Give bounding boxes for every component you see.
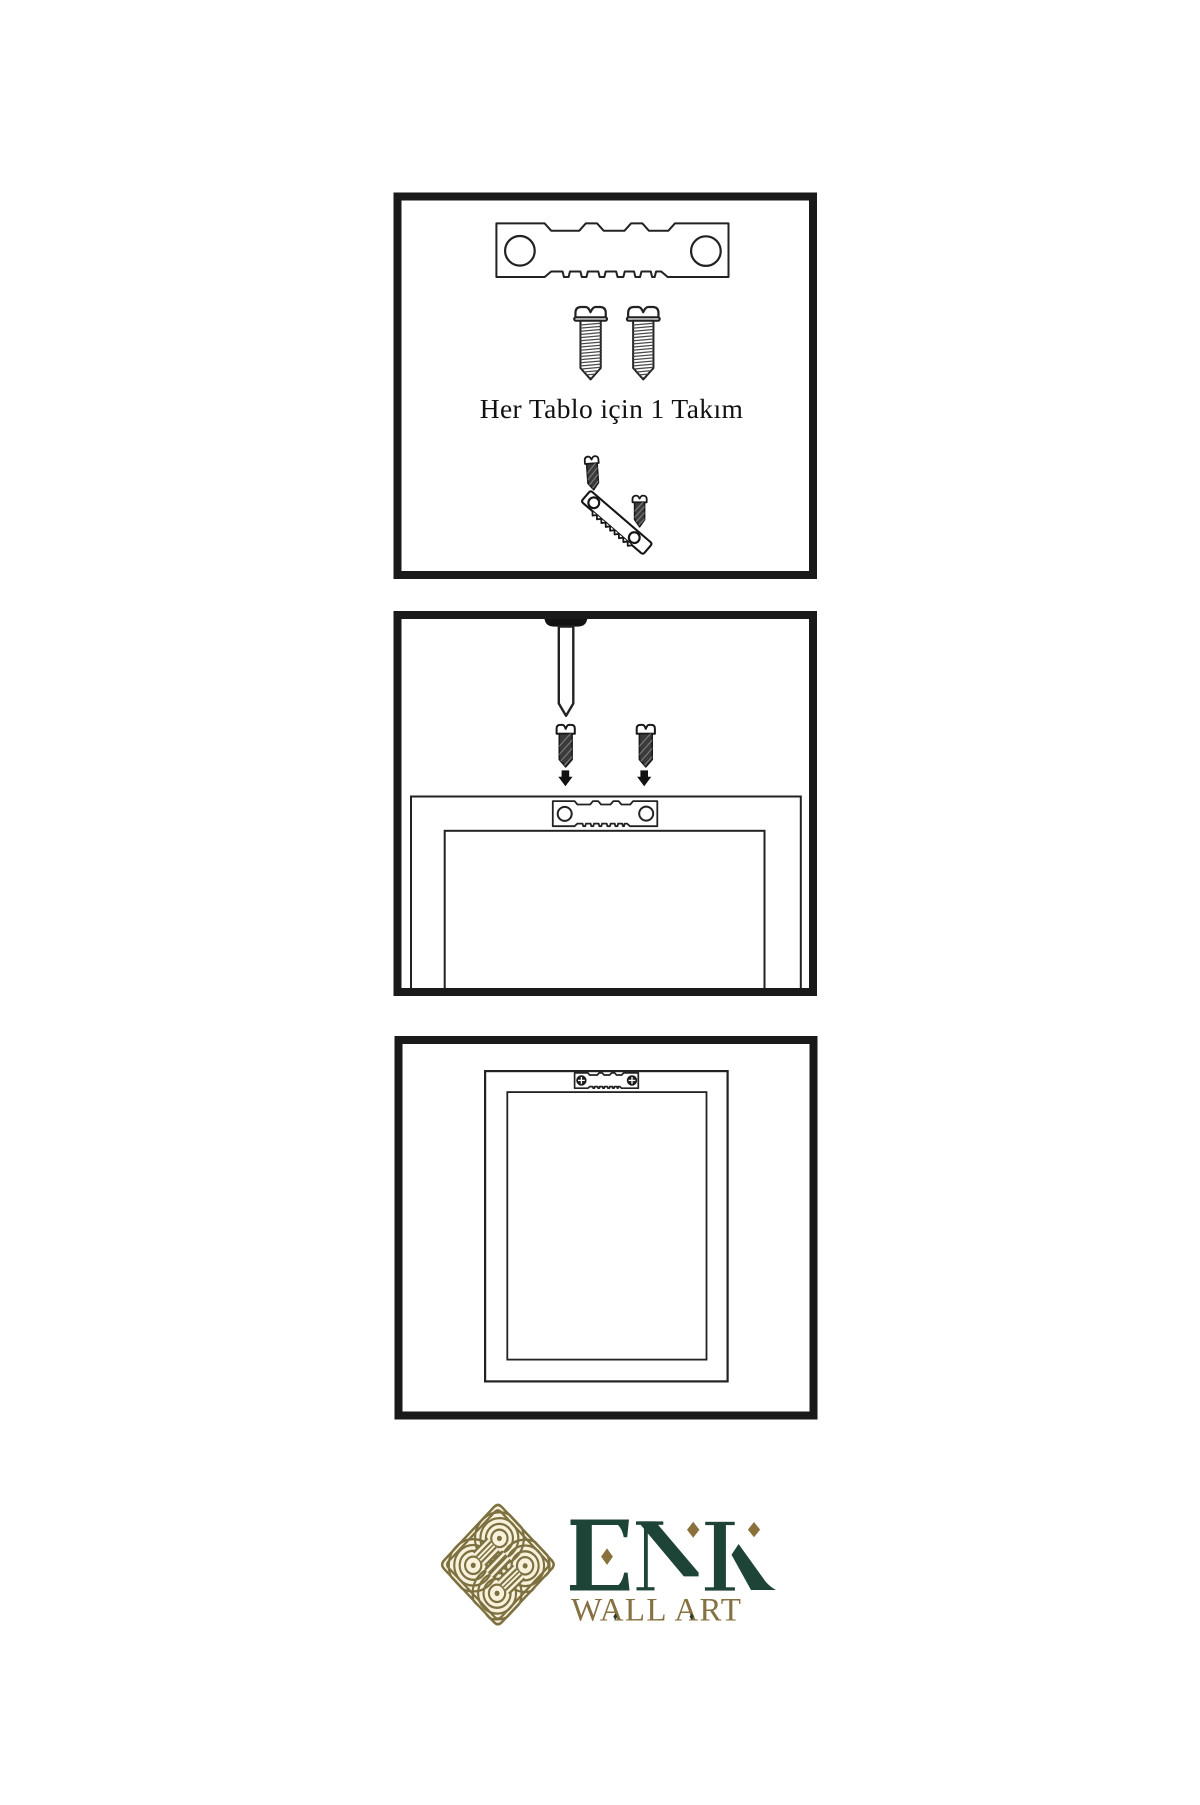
svg-text:Her Tablo için 1 Takım: Her Tablo için 1 Takım [480,393,744,424]
svg-text:WALL ART: WALL ART [571,1593,742,1629]
